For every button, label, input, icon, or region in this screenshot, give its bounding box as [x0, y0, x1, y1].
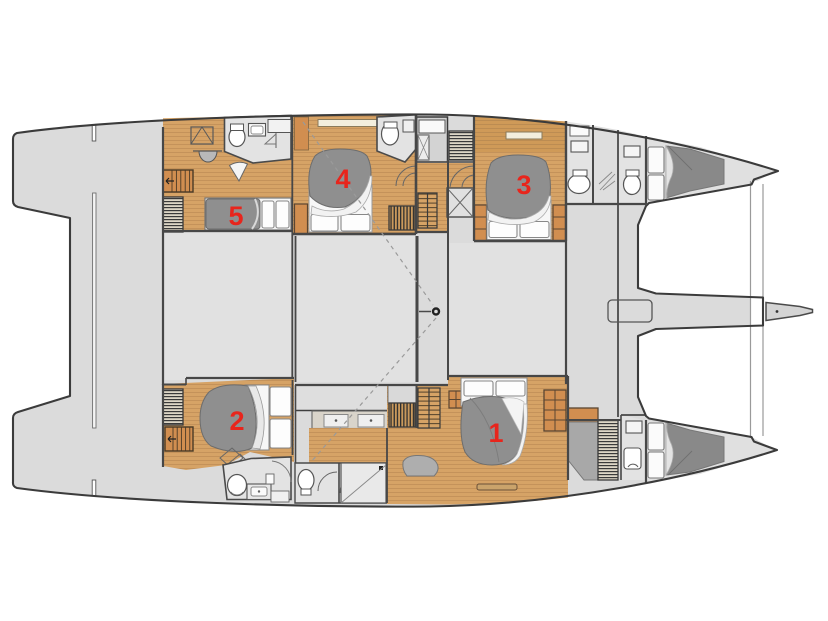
svg-text:3: 3 [516, 170, 531, 200]
svg-text:5: 5 [228, 201, 243, 231]
svg-text:1: 1 [488, 418, 503, 448]
svg-text:4: 4 [335, 164, 350, 194]
svg-text:2: 2 [229, 406, 244, 436]
